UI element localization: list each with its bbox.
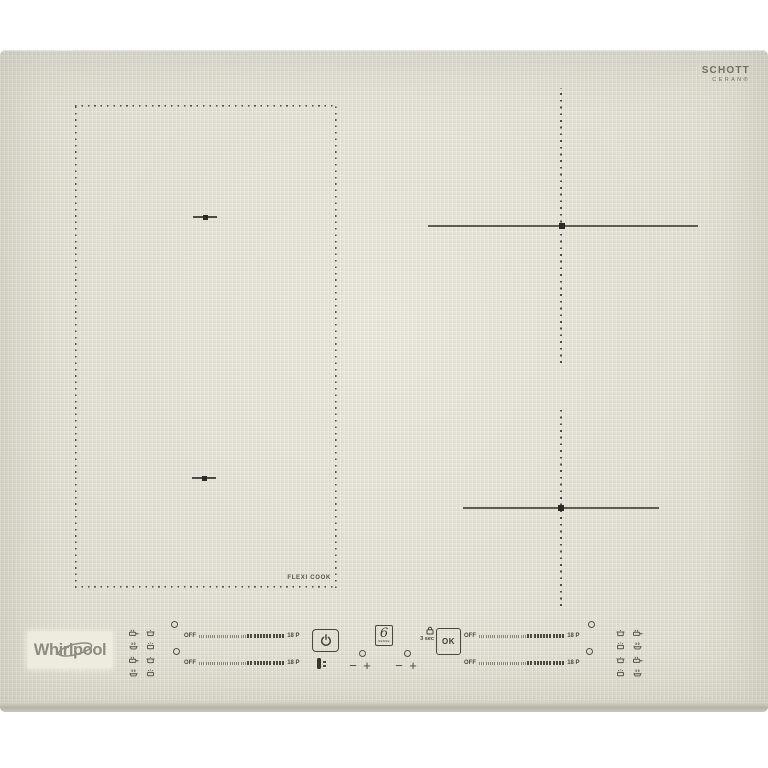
power-level-tick	[543, 634, 545, 639]
power-level-tick	[266, 661, 268, 666]
schott-ceran-logo: SCHOTT CERAN®	[702, 66, 750, 83]
power-level-tick	[257, 634, 259, 639]
timer-indicator-dot	[404, 650, 411, 657]
pot-icon	[145, 656, 156, 664]
power-level-tick	[214, 662, 215, 665]
power-level-tick	[263, 634, 265, 639]
power-level-tick	[238, 662, 239, 665]
timer-indicator-dot	[588, 621, 595, 628]
steam-pot-icon	[632, 642, 643, 650]
power-level-tick	[217, 662, 218, 665]
lock-hold-hint: 3 sec	[416, 636, 438, 642]
flexi-cook-label: FLEXI COOK	[287, 575, 331, 581]
power-level-tick	[494, 662, 495, 665]
power-level-tick	[494, 635, 495, 638]
power-level-tick	[488, 635, 489, 638]
power-level-tick	[250, 634, 252, 639]
power-level-tick	[282, 634, 284, 639]
power-level-tick	[525, 635, 526, 638]
power-level-tick	[488, 662, 489, 665]
power-level-tick	[232, 635, 233, 638]
pan-icon	[632, 629, 643, 637]
power-level-tick	[214, 635, 215, 638]
power-level-tick	[236, 662, 237, 665]
timer-indicator-dot	[586, 648, 593, 655]
glass-front-edge	[0, 702, 768, 712]
slider-touch-strip[interactable]	[479, 632, 564, 640]
power-level-tick	[230, 662, 231, 665]
power-slider-right-front[interactable]: OFF 18 P	[464, 658, 580, 668]
power-level-tick	[503, 635, 504, 638]
slider-off-label: OFF	[184, 633, 196, 639]
power-level-tick	[227, 635, 228, 638]
pan-icon	[128, 656, 139, 664]
power-level-tick	[492, 662, 493, 665]
power-level-tick	[512, 662, 513, 665]
marker-square	[203, 215, 208, 220]
power-level-tick	[553, 661, 555, 666]
power-level-tick	[257, 661, 259, 666]
power-level-tick	[497, 662, 498, 665]
power-level-tick	[206, 635, 207, 638]
timer-minus-button[interactable]: −	[346, 658, 360, 672]
power-level-tick	[201, 635, 202, 638]
power-level-tick	[245, 662, 246, 665]
pan-icon	[632, 656, 643, 664]
power-level-tick	[203, 662, 204, 665]
pot-icon	[615, 629, 626, 637]
power-level-tick	[199, 662, 200, 665]
power-level-tick	[208, 662, 209, 665]
power-level-tick	[499, 635, 500, 638]
power-level-tick	[217, 635, 218, 638]
power-level-tick	[516, 662, 517, 665]
slider-max-label: 18 P	[567, 633, 579, 639]
schott-logo-text: SCHOTT	[702, 66, 750, 77]
power-level-tick	[245, 635, 246, 638]
power-level-tick	[537, 661, 539, 666]
timer-plus-button[interactable]: +	[360, 658, 374, 672]
pause-bar	[317, 658, 321, 669]
pot-icon	[615, 656, 626, 664]
power-level-tick	[527, 634, 529, 639]
steam-pot-icon	[128, 669, 139, 677]
slider-off-label: OFF	[184, 660, 196, 666]
power-level-tick	[530, 661, 532, 666]
power-level-tick	[510, 662, 511, 665]
power-level-tick	[505, 662, 506, 665]
flexi-cook-zone: FLEXI COOK	[75, 105, 337, 588]
power-level-tick	[230, 635, 231, 638]
power-level-tick	[505, 635, 506, 638]
slider-max-label: 18 P	[287, 660, 299, 666]
power-level-tick	[232, 662, 233, 665]
power-level-tick	[210, 635, 211, 638]
power-level-tick	[534, 634, 536, 639]
power-level-tick	[521, 662, 522, 665]
power-level-tick	[225, 662, 226, 665]
zone-center-square	[559, 223, 565, 229]
power-level-tick	[241, 662, 242, 665]
power-level-tick	[540, 661, 542, 666]
power-level-tick	[234, 662, 235, 665]
power-level-tick	[199, 635, 200, 638]
power-level-tick	[527, 661, 529, 666]
power-level-tick	[483, 662, 484, 665]
pause-dash	[323, 661, 326, 663]
power-level-tick	[250, 661, 252, 666]
power-level-tick	[556, 634, 558, 639]
power-level-tick	[254, 661, 256, 666]
power-level-tick	[486, 662, 487, 665]
power-level-tick	[549, 634, 551, 639]
power-level-tick	[562, 661, 564, 666]
power-level-tick	[514, 662, 515, 665]
power-level-tick	[269, 661, 271, 666]
power-level-tick	[497, 635, 498, 638]
power-level-tick	[556, 661, 558, 666]
power-level-tick	[503, 662, 504, 665]
power-level-tick	[553, 634, 555, 639]
power-level-tick	[546, 661, 548, 666]
power-level-tick	[501, 635, 502, 638]
power-level-tick	[486, 635, 487, 638]
whirlpool-logo-plate: Whirlpool	[28, 632, 112, 668]
power-level-tick	[221, 662, 222, 665]
power-level-tick	[241, 635, 242, 638]
power-level-tick	[507, 635, 508, 638]
steam-pot-icon	[632, 669, 643, 677]
power-level-tick	[537, 634, 539, 639]
power-level-tick	[540, 634, 542, 639]
lock-icon	[426, 626, 434, 635]
power-level-tick	[260, 661, 262, 666]
power-level-tick	[521, 635, 522, 638]
right-front-zone-line	[463, 507, 659, 509]
power-slider-left-rear[interactable]: OFF 18 P	[184, 631, 300, 641]
power-level-tick	[512, 635, 513, 638]
right-rear-zone-line	[428, 225, 698, 227]
power-slider-right-rear[interactable]: OFF 18 P	[464, 631, 580, 641]
pot-icon	[145, 629, 156, 637]
power-level-tick	[266, 634, 268, 639]
timer-indicator-dot	[359, 650, 366, 657]
power-level-tick	[525, 662, 526, 665]
power-level-tick	[221, 635, 222, 638]
power-level-tick	[243, 662, 244, 665]
power-level-tick	[510, 635, 511, 638]
boiling-pot-icon	[145, 642, 156, 650]
power-level-tick	[543, 661, 545, 666]
power-level-tick	[219, 635, 220, 638]
timer-minus-button[interactable]: −	[392, 658, 406, 672]
power-level-tick	[243, 635, 244, 638]
zone-center-marker	[192, 475, 216, 481]
power-level-tick	[507, 662, 508, 665]
power-level-tick	[514, 635, 515, 638]
power-level-tick	[562, 634, 564, 639]
power-level-tick	[530, 634, 532, 639]
power-level-tick	[212, 662, 213, 665]
pause-indicator-icon	[317, 657, 327, 670]
power-level-tick	[203, 635, 204, 638]
six-sense-sub-label: SENSE	[378, 639, 390, 643]
power-level-tick	[260, 634, 262, 639]
pan-icon	[128, 629, 139, 637]
power-level-tick	[212, 635, 213, 638]
slider-touch-strip[interactable]	[479, 659, 564, 667]
ceran-logo-text: CERAN®	[702, 78, 750, 84]
slider-off-label: OFF	[464, 633, 476, 639]
power-level-tick	[273, 661, 275, 666]
power-level-tick	[276, 661, 278, 666]
power-level-tick	[225, 635, 226, 638]
power-level-tick	[223, 635, 224, 638]
power-level-tick	[534, 661, 536, 666]
power-level-tick	[481, 635, 482, 638]
power-level-tick	[479, 662, 480, 665]
power-level-tick	[238, 635, 239, 638]
power-level-tick	[483, 635, 484, 638]
power-level-tick	[499, 662, 500, 665]
power-level-tick	[219, 662, 220, 665]
left-cookware-icon-grid	[128, 629, 156, 677]
marker-square	[202, 476, 207, 481]
slider-off-label: OFF	[464, 660, 476, 666]
power-level-tick	[206, 662, 207, 665]
power-level-tick	[481, 662, 482, 665]
slider-touch-strip[interactable]	[199, 659, 284, 667]
zone-center-marker	[193, 214, 217, 220]
power-slider-left-front[interactable]: OFF 18 P	[184, 658, 300, 668]
six-sense-logo: 6 SENSE	[375, 625, 393, 646]
power-level-tick	[523, 662, 524, 665]
power-level-tick	[279, 634, 281, 639]
power-level-tick	[276, 634, 278, 639]
power-level-tick	[201, 662, 202, 665]
power-level-tick	[247, 661, 249, 666]
power-level-tick	[559, 634, 561, 639]
power-level-tick	[247, 634, 249, 639]
power-level-tick	[223, 662, 224, 665]
power-level-tick	[559, 661, 561, 666]
steam-pot-icon	[128, 642, 139, 650]
boiling-pot-icon	[615, 642, 626, 650]
power-level-tick	[282, 661, 284, 666]
power-level-tick	[479, 635, 480, 638]
timer-plus-button[interactable]: +	[406, 658, 420, 672]
power-level-tick	[210, 662, 211, 665]
boiling-pot-icon	[615, 669, 626, 677]
power-level-tick	[518, 662, 519, 665]
slider-max-label: 18 P	[567, 660, 579, 666]
whirlpool-swoosh-icon	[28, 632, 112, 668]
power-level-tick	[518, 635, 519, 638]
power-level-tick	[273, 634, 275, 639]
power-level-tick	[227, 662, 228, 665]
power-icon	[320, 634, 332, 647]
power-level-tick	[254, 634, 256, 639]
cooktop-product-photo: SCHOTT CERAN® FLEXI COOK Whirlpool	[0, 0, 768, 768]
power-button[interactable]	[312, 629, 339, 652]
zone-center-square	[558, 505, 564, 511]
power-level-tick	[279, 661, 281, 666]
power-level-tick	[546, 634, 548, 639]
power-level-tick	[269, 634, 271, 639]
slider-touch-strip[interactable]	[199, 632, 284, 640]
power-level-tick	[208, 635, 209, 638]
power-level-tick	[236, 635, 237, 638]
ok-button[interactable]: OK	[436, 628, 461, 655]
slider-max-label: 18 P	[287, 633, 299, 639]
power-level-tick	[516, 635, 517, 638]
power-level-tick	[490, 662, 491, 665]
power-level-tick	[492, 635, 493, 638]
timer-indicator-dot	[171, 621, 178, 628]
boiling-pot-icon	[145, 669, 156, 677]
power-level-tick	[490, 635, 491, 638]
power-level-tick	[263, 661, 265, 666]
power-level-tick	[234, 635, 235, 638]
power-level-tick	[501, 662, 502, 665]
timer-indicator-dot	[173, 648, 180, 655]
power-level-tick	[523, 635, 524, 638]
power-level-tick	[549, 661, 551, 666]
right-cookware-icon-grid	[615, 629, 643, 677]
pause-dash	[323, 665, 326, 667]
